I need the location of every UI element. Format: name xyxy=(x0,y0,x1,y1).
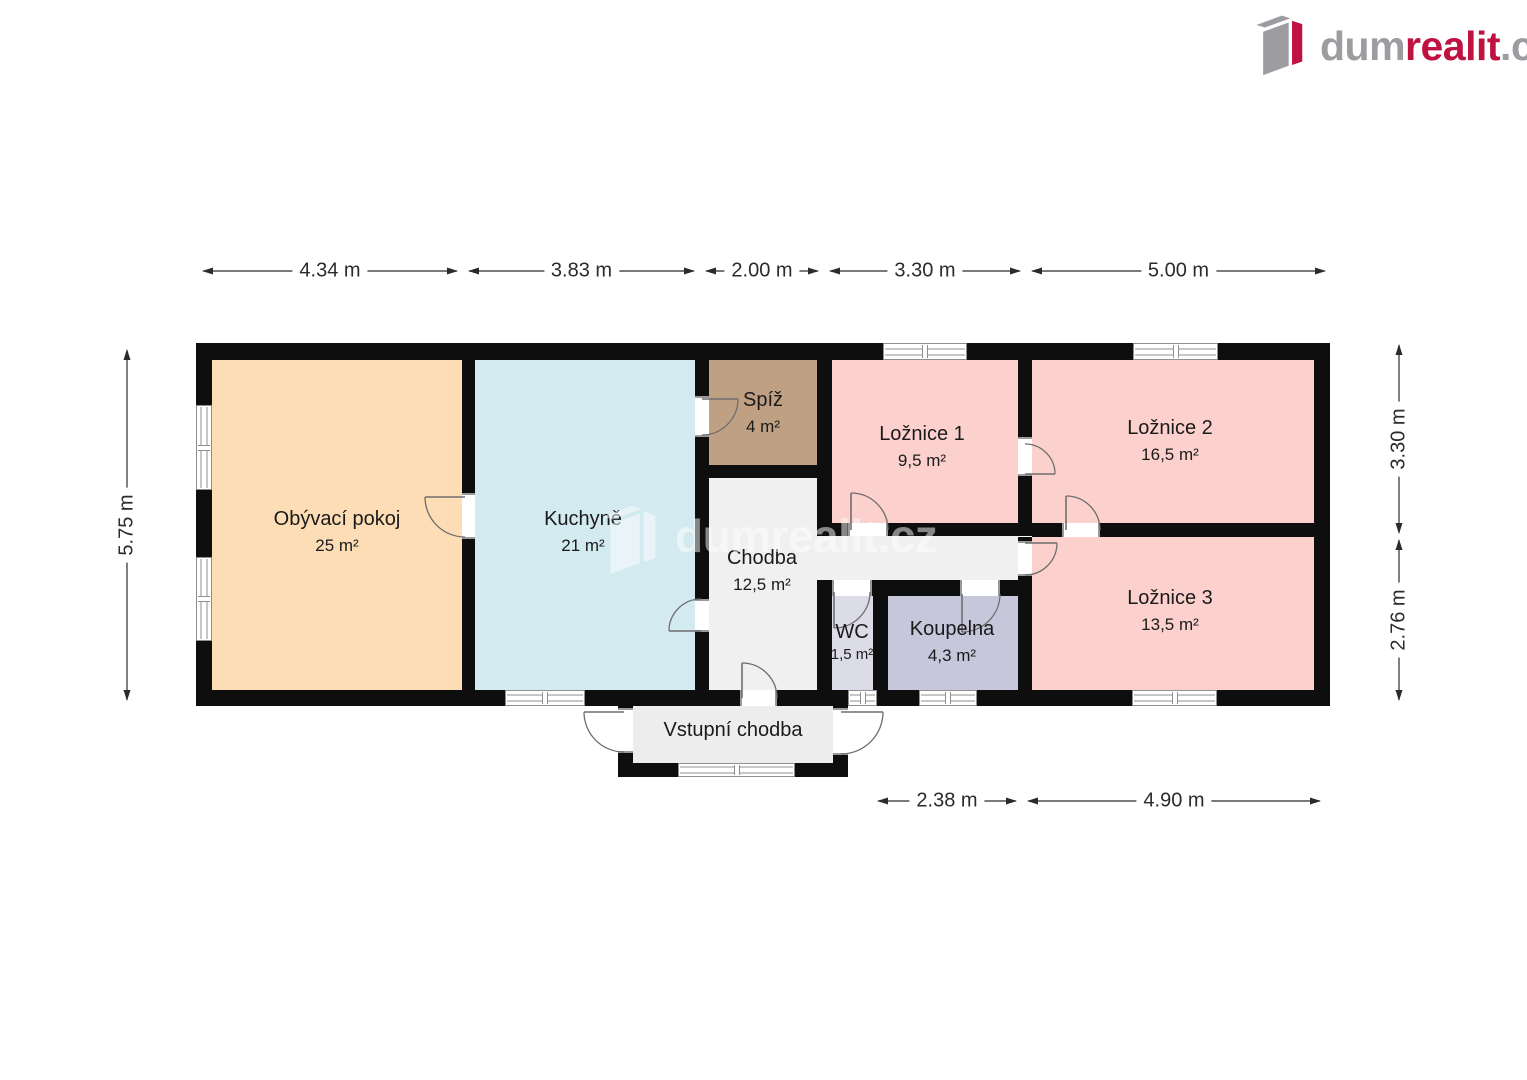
room-area: 9,5 m² xyxy=(879,451,965,471)
watermark-text: dumrealit.cz xyxy=(675,509,937,563)
room-area: 12,5 m² xyxy=(727,575,797,595)
room-label-loznice-2: Ložnice 216,5 m² xyxy=(1127,417,1213,465)
logo-text-realit: realit xyxy=(1405,23,1500,69)
room-name: Ložnice 1 xyxy=(879,423,965,446)
room-name: Ložnice 3 xyxy=(1127,587,1213,610)
room-area: 13,5 m² xyxy=(1127,615,1213,635)
watermark: dumrealit.cz xyxy=(601,497,937,575)
dumrealit-logo: dumrealit.cz xyxy=(1252,8,1527,76)
dumrealit-logo-text: dumrealit.cz xyxy=(1320,26,1527,67)
room-name: Koupelna xyxy=(910,618,995,641)
dimension-label: 2.38 m xyxy=(909,790,984,813)
door-arc xyxy=(742,663,777,698)
dimension-label: 3.30 m xyxy=(887,260,962,283)
door-arc xyxy=(1025,543,1057,575)
dimension-label: 5.00 m xyxy=(1141,260,1216,283)
dimension-label: 4.90 m xyxy=(1136,790,1211,813)
dimension-label: 3.30 m xyxy=(1388,401,1411,476)
dimension-label: 2.00 m xyxy=(724,260,799,283)
door-arc xyxy=(425,497,465,537)
door-arc xyxy=(1066,496,1100,530)
room-label-loznice-1: Ložnice 19,5 m² xyxy=(879,423,965,471)
dimension-label: 2.76 m xyxy=(1388,582,1411,657)
room-label-spiz: Spíž4 m² xyxy=(743,389,783,437)
room-label-loznice-3: Ložnice 313,5 m² xyxy=(1127,587,1213,635)
room-area: 25 m² xyxy=(274,536,401,556)
room-area: 4,3 m² xyxy=(910,646,995,666)
room-area: 16,5 m² xyxy=(1127,445,1213,465)
room-label-vstupni-chodba: Vstupní chodba xyxy=(664,719,803,742)
room-label-obyvaci-pokoj: Obývací pokoj25 m² xyxy=(274,508,401,556)
logo-text-cz: .cz xyxy=(1500,23,1527,69)
room-name: WC xyxy=(831,621,874,644)
door-arc xyxy=(584,712,624,752)
logo-text-dum: dum xyxy=(1320,23,1405,69)
room-label-koupelna: Koupelna4,3 m² xyxy=(910,618,995,666)
door-arc xyxy=(702,399,738,435)
door-arc xyxy=(669,599,701,631)
dimension-label: 5.75 m xyxy=(116,487,139,562)
room-name: Spíž xyxy=(743,389,783,412)
room-name: Ložnice 2 xyxy=(1127,417,1213,440)
dimension-label: 3.83 m xyxy=(544,260,619,283)
room-name: Obývací pokoj xyxy=(274,508,401,531)
room-area: 1,5 m² xyxy=(831,646,874,663)
watermark-box-icon xyxy=(601,497,661,575)
room-label-wc: WC1,5 m² xyxy=(831,621,874,663)
door-arc xyxy=(841,712,883,754)
dimension-label: 4.34 m xyxy=(292,260,367,283)
room-name: Vstupní chodba xyxy=(664,719,803,742)
room-area: 4 m² xyxy=(743,417,783,437)
door-arc xyxy=(1025,444,1055,474)
dumrealit-box-icon xyxy=(1252,8,1310,76)
